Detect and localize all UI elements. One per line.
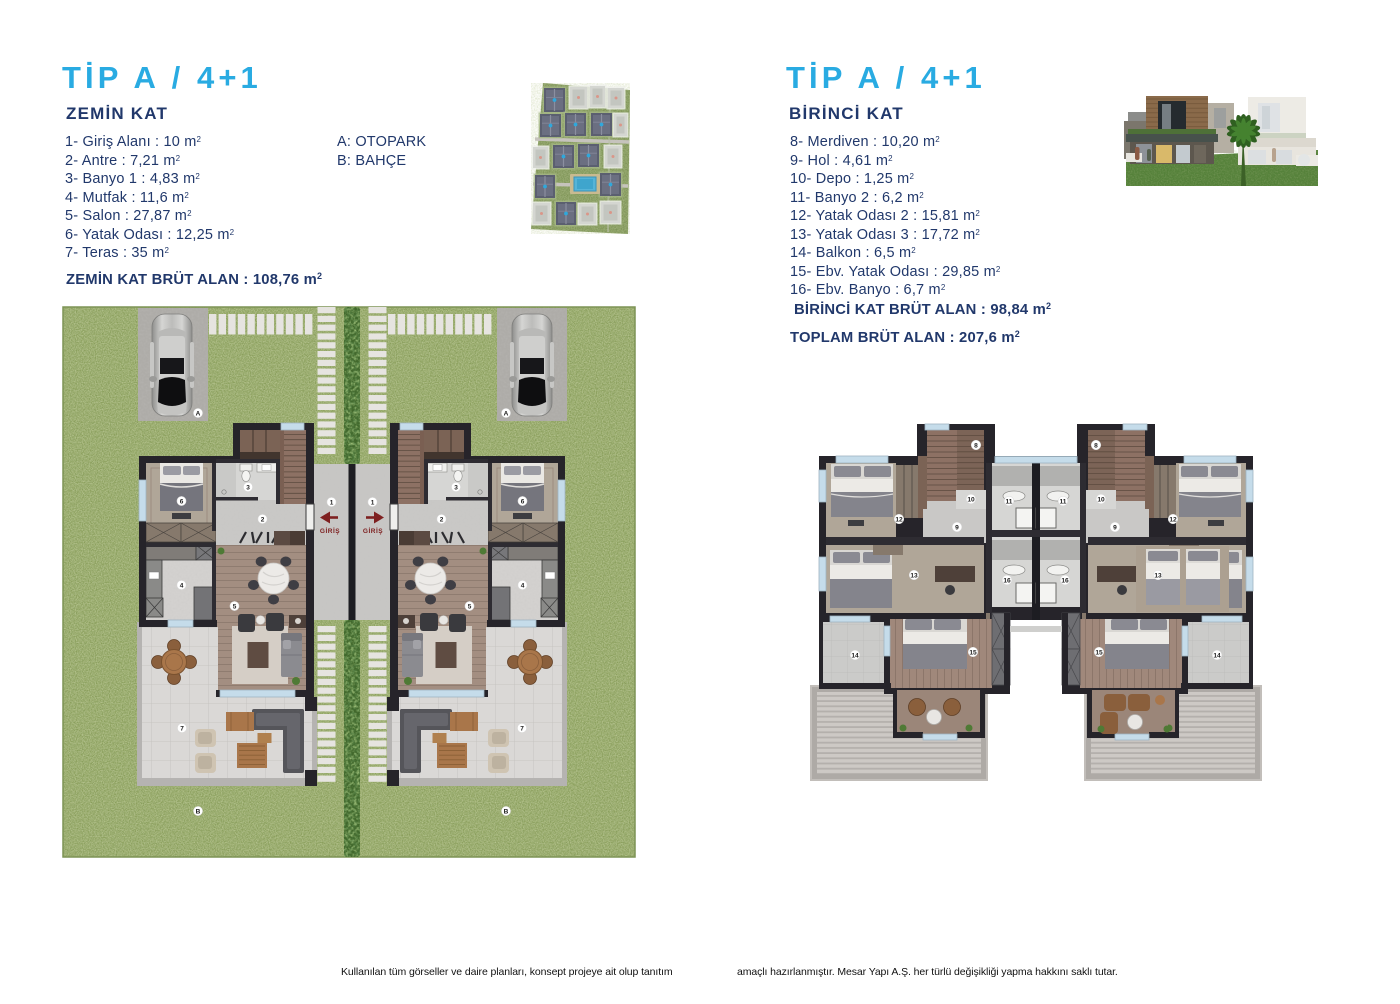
svg-text:14: 14 [851,652,859,659]
svg-text:16: 16 [1061,577,1069,584]
svg-text:16: 16 [1003,577,1011,584]
svg-text:12: 12 [1169,516,1177,523]
svg-text:GİRİŞ: GİRİŞ [320,527,340,535]
svg-text:6: 6 [521,498,525,505]
svg-text:B: B [504,808,509,815]
svg-text:2: 2 [261,516,265,523]
svg-text:A: A [504,410,509,417]
svg-text:7: 7 [520,725,524,732]
svg-text:13: 13 [1154,572,1162,579]
svg-text:10: 10 [1097,496,1105,503]
svg-text:8: 8 [1094,442,1098,449]
svg-text:4: 4 [521,582,525,589]
svg-text:1: 1 [371,499,375,506]
svg-text:9: 9 [955,524,959,531]
svg-text:B: B [196,808,201,815]
svg-text:11: 11 [1006,498,1013,505]
svg-text:14: 14 [1213,652,1221,659]
svg-text:5: 5 [468,603,472,610]
svg-text:13: 13 [910,572,918,579]
svg-text:1: 1 [330,499,334,506]
svg-text:4: 4 [180,582,184,589]
svg-text:15: 15 [969,649,977,656]
svg-text:11: 11 [1060,498,1067,505]
svg-text:6: 6 [180,498,184,505]
svg-text:GİRİŞ: GİRİŞ [363,527,383,535]
svg-text:12: 12 [895,516,903,523]
svg-text:3: 3 [454,484,458,491]
svg-text:5: 5 [233,603,237,610]
svg-text:10: 10 [967,496,975,503]
svg-text:8: 8 [974,442,978,449]
svg-text:A: A [196,410,201,417]
svg-text:2: 2 [440,516,444,523]
svg-text:7: 7 [180,725,184,732]
svg-text:3: 3 [246,484,250,491]
svg-text:15: 15 [1095,649,1103,656]
svg-text:9: 9 [1113,524,1117,531]
